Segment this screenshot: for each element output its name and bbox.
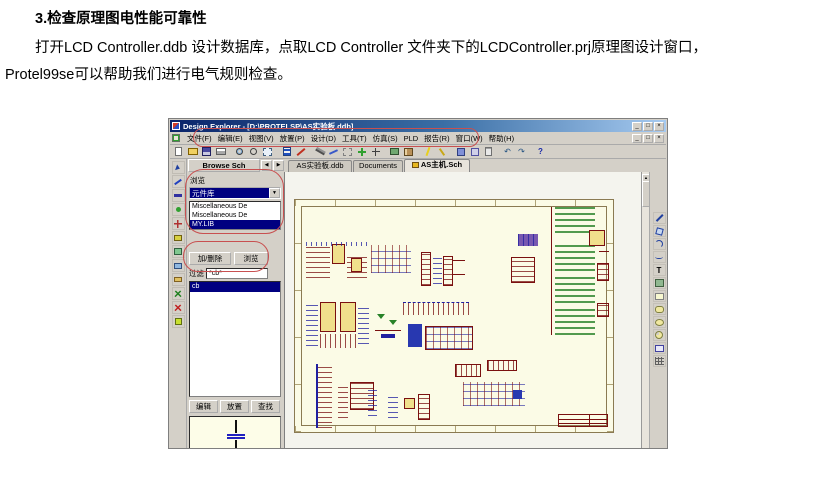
graphic-tool-icon[interactable]	[653, 277, 666, 289]
chart-tool-icon[interactable]	[653, 342, 666, 354]
new-document-icon[interactable]	[172, 146, 185, 158]
pencil-icon[interactable]	[294, 146, 307, 158]
add-remove-button[interactable]: 加/删除	[189, 252, 231, 265]
filter-input[interactable]: *cb*	[206, 268, 268, 279]
schematic-block-keypad	[371, 245, 411, 273]
title-bar[interactable]: Design Explorer - [D:\PROTELSP\AS实验板.ddb…	[170, 120, 666, 132]
tab-documents[interactable]: Documents	[353, 160, 403, 172]
design-explorer-window: Design Explorer - [D:\PROTELSP\AS实验板.ddb…	[168, 118, 668, 449]
arc-tool-icon[interactable]	[653, 238, 666, 250]
list-item[interactable]: Miscellaneous De	[190, 211, 280, 220]
zoom-in-icon[interactable]	[233, 146, 246, 158]
menu-window[interactable]: 窗口(W)	[453, 133, 486, 144]
simulate-icon[interactable]	[454, 146, 467, 158]
menu-edit[interactable]: 编辑(E)	[215, 133, 246, 144]
directive-tool-icon[interactable]	[172, 315, 185, 328]
zoom-window-icon[interactable]	[261, 146, 274, 158]
tab-row: Browse Sch ◀ ▶ AS实验板.ddb Documents AS主机.…	[170, 159, 666, 172]
menu-help[interactable]: 帮助(H)	[486, 133, 517, 144]
edit-button[interactable]: 编辑	[189, 400, 218, 413]
bus-tool-icon[interactable]	[172, 189, 185, 202]
ellipse-tool-icon[interactable]	[653, 316, 666, 328]
parts-icon[interactable]	[388, 146, 401, 158]
menu-reports[interactable]: 报告(R)	[421, 133, 452, 144]
doc-close-button[interactable]: ×	[654, 134, 664, 143]
schematic-doc-icon	[412, 162, 419, 168]
selection-rect-icon[interactable]	[341, 146, 354, 158]
menu-tools[interactable]: 工具(T)	[339, 133, 370, 144]
menu-view[interactable]: 视图(V)	[246, 133, 277, 144]
browse-button[interactable]: 浏览	[234, 252, 268, 265]
wiring-tool-strip	[170, 159, 187, 448]
wire-tool-icon[interactable]	[172, 175, 185, 188]
app-icon	[172, 122, 180, 130]
doc-heading: 3.检查原理图电性能可靠性	[35, 7, 207, 28]
filter-label: 过滤	[189, 268, 204, 279]
wire-mode-icon[interactable]	[421, 146, 434, 158]
sheet-symbol-tool-icon[interactable]	[172, 245, 185, 258]
browse-label: 浏览	[190, 175, 282, 186]
move-icon[interactable]	[355, 146, 368, 158]
line-tool-icon[interactable]	[653, 212, 666, 224]
rectangle-tool-icon[interactable]	[653, 290, 666, 302]
doc-restore-button[interactable]: □	[643, 134, 653, 143]
menu-file[interactable]: 文件(F)	[184, 133, 215, 144]
tab-design-database[interactable]: AS实验板.ddb	[288, 160, 352, 172]
window-title: Design Explorer - [D:\PROTELSP\AS实验板.ddb…	[183, 121, 632, 132]
schematic-block-oscillator	[388, 392, 432, 422]
schematic-title-block	[558, 414, 608, 427]
open-icon[interactable]	[186, 146, 199, 158]
schematic-block-header	[518, 234, 538, 246]
tutorial-page: 3.检查原理图电性能可靠性 打开LCD Controller.ddb 设计数据库…	[0, 0, 822, 494]
schematic-editor-canvas[interactable]	[284, 172, 641, 448]
schematic-block-power	[455, 360, 539, 412]
part-tool-icon[interactable]	[172, 231, 185, 244]
schematic-block-connector	[421, 250, 465, 290]
find-button[interactable]: 查找	[251, 400, 280, 413]
sheet-entry-tool-icon[interactable]	[172, 259, 185, 272]
help-icon[interactable]: ?	[534, 146, 547, 158]
schematic-block-blue-connector	[408, 324, 422, 347]
restore-button[interactable]: □	[643, 122, 653, 131]
schematic-block-driver-bank	[541, 207, 610, 337]
place-button[interactable]: 放置	[220, 400, 249, 413]
chevron-down-icon[interactable]: ▼	[269, 188, 280, 198]
browse-panel-header: Browse Sch	[188, 159, 260, 172]
redo-icon[interactable]: ↷	[515, 146, 528, 158]
library-icon[interactable]	[402, 146, 415, 158]
no-erc-tool-icon[interactable]	[172, 301, 185, 314]
menu-place[interactable]: 放置(P)	[277, 133, 308, 144]
menu-bar: 文件(F) 编辑(E) 视图(V) 放置(P) 设计(D) 工具(T) 仿真(S…	[170, 132, 666, 145]
list-item-selected[interactable]: MY.LIB	[190, 220, 280, 229]
print-icon[interactable]	[214, 146, 227, 158]
probe-icon[interactable]	[435, 146, 448, 158]
port-tool-icon[interactable]	[172, 273, 185, 286]
browse-mode-dropdown[interactable]: 元件库 ▼	[189, 187, 281, 199]
schematic-block-pin-strip	[316, 364, 332, 428]
wiring-tools-icon[interactable]	[327, 146, 340, 158]
clipboard-icon[interactable]	[482, 146, 495, 158]
library-list[interactable]: Miscellaneous De Miscellaneous De MY.LIB	[189, 201, 281, 230]
drawing-tool-strip: T	[649, 172, 668, 448]
browse-library-icon[interactable]	[280, 146, 293, 158]
list-item-selected[interactable]: cb	[190, 282, 280, 292]
document-window-icon[interactable]	[172, 134, 180, 142]
schematic-block-buffer	[511, 257, 535, 283]
schematic-block-ic	[338, 380, 378, 422]
power-port-tool-icon[interactable]	[172, 217, 185, 230]
schematic-block-cpu	[306, 242, 370, 282]
list-item[interactable]: Miscellaneous De	[190, 202, 280, 211]
panel-scroll-right-icon[interactable]: ▶	[273, 160, 284, 171]
cursor-tool-icon[interactable]	[172, 161, 185, 174]
editor-vertical-scrollbar[interactable]: ▲	[641, 172, 649, 448]
net-label-tool-icon[interactable]	[172, 287, 185, 300]
save-icon[interactable]	[200, 146, 213, 158]
component-list[interactable]: cb	[189, 281, 281, 397]
zoom-out-icon[interactable]	[247, 146, 260, 158]
paste-array-tool-icon[interactable]	[653, 355, 666, 367]
junction-tool-icon[interactable]	[172, 203, 185, 216]
browse-panel: 浏览 元件库 ▼ Miscellaneous De Miscellaneous …	[187, 172, 284, 448]
schematic-sheet	[294, 199, 614, 433]
panel-scroll-left-icon[interactable]: ◀	[261, 160, 272, 171]
schematic-block-socket-array	[425, 326, 473, 350]
main-toolbar: ↶ ↷ ?	[170, 145, 666, 159]
schematic-block-diodes	[375, 312, 403, 346]
component-preview	[189, 416, 281, 449]
capacitor-symbol	[235, 420, 237, 433]
doc-minimize-button[interactable]: _	[632, 134, 642, 143]
bezier-tool-icon[interactable]	[653, 251, 666, 263]
doc-paragraph-line1: 打开LCD Controller.ddb 设计数据库，点取LCD Control…	[35, 36, 707, 57]
round-rect-tool-icon[interactable]	[653, 303, 666, 315]
pld-icon[interactable]	[468, 146, 481, 158]
schematic-block-logic	[306, 300, 371, 350]
cutter-icon[interactable]	[313, 146, 326, 158]
menu-simulate[interactable]: 仿真(S)	[370, 133, 401, 144]
minimize-button[interactable]: _	[632, 122, 642, 131]
close-button[interactable]: ×	[654, 122, 664, 131]
doc-paragraph-line2: Protel99se可以帮助我们进行电气规则检查。	[5, 63, 292, 84]
tab-schematic[interactable]: AS主机.Sch	[404, 159, 470, 172]
polygon-tool-icon[interactable]	[653, 225, 666, 237]
undo-icon[interactable]: ↶	[501, 146, 514, 158]
menu-design[interactable]: 设计(D)	[308, 133, 339, 144]
pie-tool-icon[interactable]	[653, 329, 666, 341]
menu-pld[interactable]: PLD	[401, 134, 422, 143]
text-tool-icon[interactable]: T	[653, 264, 666, 276]
schematic-block-resistor-row	[403, 302, 469, 315]
crosshair-icon[interactable]	[369, 146, 382, 158]
